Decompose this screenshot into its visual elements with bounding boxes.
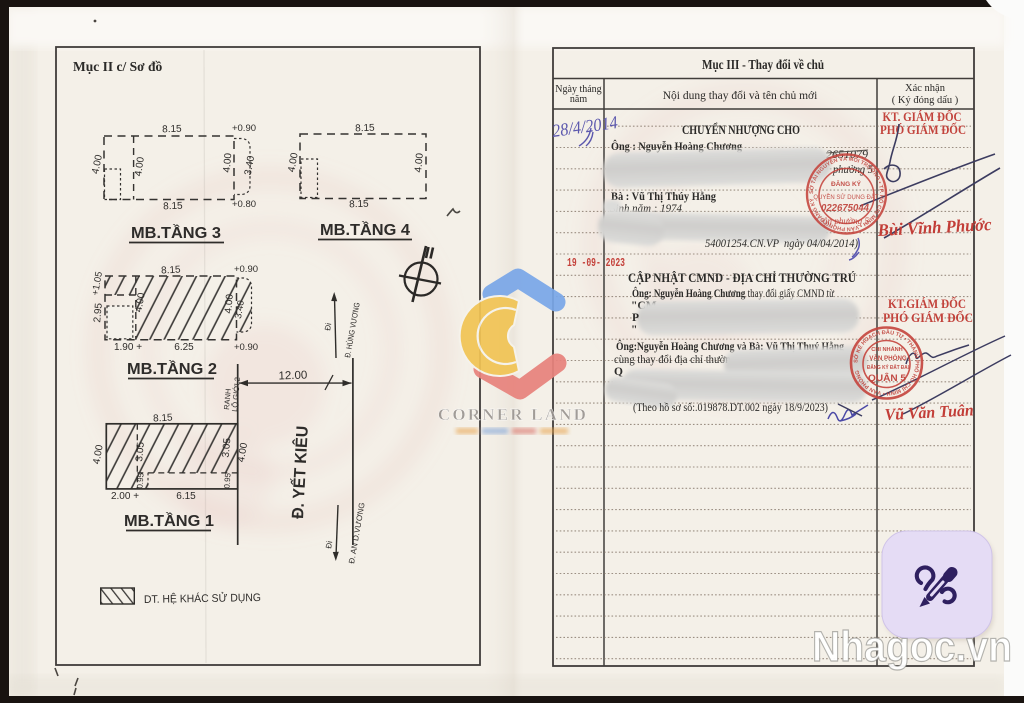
- svg-text:8.15: 8.15: [161, 264, 181, 276]
- svg-text:8.15: 8.15: [162, 124, 182, 136]
- svg-text:+0.90: +0.90: [234, 342, 258, 353]
- svg-text:8.15: 8.15: [355, 123, 375, 135]
- svg-text:2.95: 2.95: [92, 302, 105, 323]
- svg-text:QUYỀN SỬ DỤNG ĐẤT: QUYỀN SỬ DỤNG ĐẤT: [813, 194, 878, 201]
- svg-text:MB.TẦNG 2: MB.TẦNG 2: [127, 359, 217, 378]
- svg-text:CHUYỂN NHƯỢNG CHO: CHUYỂN NHƯỢNG CHO: [682, 122, 800, 137]
- svg-text:8.15: 8.15: [163, 201, 183, 213]
- svg-text:6.15: 6.15: [176, 491, 196, 502]
- svg-text:ngày 04/04/2014): ngày 04/04/2014): [784, 238, 858, 250]
- svg-text:Q: Q: [614, 366, 623, 378]
- svg-text:PHÓ GIÁM ĐỐC: PHÓ GIÁM ĐỐC: [880, 122, 966, 137]
- svg-text:": ": [631, 324, 637, 336]
- svg-text:PHÓ GIÁM ĐỐC: PHÓ GIÁM ĐỐC: [883, 310, 973, 325]
- svg-text:KT. GIÁM ĐỐC: KT. GIÁM ĐỐC: [883, 109, 962, 124]
- svg-text:CORNER LAND: CORNER LAND: [438, 405, 588, 424]
- svg-text:Ông: Nguyễn Hoàng Chương thay: Ông: Nguyễn Hoàng Chương thay đổi giấy C…: [632, 286, 835, 300]
- svg-text:(Theo hồ sơ số:.019878.DT.002: (Theo hồ sơ số:.019878.DT.002 ngày 18/9/…: [633, 401, 828, 414]
- svg-text:CHI NHÁNH: CHI NHÁNH: [871, 346, 902, 353]
- svg-text:Mục II c/ Sơ đồ: Mục II c/ Sơ đồ: [73, 59, 162, 74]
- svg-text:VĂN PHÒNG: VĂN PHÒNG: [869, 354, 907, 362]
- svg-text:ĐĂNG KÝ ĐẤT ĐAI: ĐĂNG KÝ ĐẤT ĐAI: [867, 364, 909, 371]
- svg-text:4.00: 4.00: [413, 152, 426, 173]
- svg-text:DT. HỆ KHÁC SỬ DỤNG: DT. HỆ KHÁC SỬ DỤNG: [144, 591, 261, 606]
- svg-text:năm: năm: [570, 94, 587, 105]
- svg-text:MB.TẦNG 4: MB.TẦNG 4: [320, 220, 410, 239]
- svg-text:Nhagoc.vn: Nhagoc.vn: [812, 623, 1012, 671]
- svg-text:3.05: 3.05: [134, 441, 147, 462]
- svg-text:6.25: 6.25: [174, 342, 194, 353]
- svg-text:0.95: 0.95: [135, 472, 145, 489]
- svg-text:Bà : Vũ Thị Thúy Hằng: Bà : Vũ Thị Thúy Hằng: [611, 189, 716, 203]
- svg-text:8.15: 8.15: [349, 199, 369, 211]
- svg-text:Nội dung thay đổi và tên chủ m: Nội dung thay đổi và tên chủ mới: [663, 89, 818, 102]
- svg-text:4.00: 4.00: [222, 152, 235, 173]
- svg-text:3.05: 3.05: [221, 437, 234, 458]
- svg-text:( Ký đóng dấu ): ( Ký đóng dấu ): [892, 95, 959, 106]
- svg-text:MB.TẦNG 3: MB.TẦNG 3: [131, 223, 221, 242]
- svg-text:022675044: 022675044: [821, 203, 869, 214]
- svg-text:ĐĂNG KÝ: ĐĂNG KÝ: [831, 179, 862, 188]
- svg-text:1.90 +: 1.90 +: [114, 342, 142, 353]
- svg-text:KT.GIÁM ĐỐC: KT.GIÁM ĐỐC: [888, 296, 966, 311]
- svg-text:MB.TẦNG 1: MB.TẦNG 1: [124, 511, 214, 530]
- svg-text:54001254.CN.VP: 54001254.CN.VP: [705, 238, 779, 250]
- svg-text:+0.90: +0.90: [232, 123, 256, 134]
- svg-text:12.00: 12.00: [278, 370, 307, 383]
- svg-text:8.15: 8.15: [153, 412, 173, 424]
- svg-text:Mục III - Thay đổi về chủ: Mục III - Thay đổi về chủ: [702, 57, 824, 72]
- svg-text:cùng thay đổi địa chỉ thường: cùng thay đổi địa chỉ thường: [614, 353, 736, 366]
- svg-text:QUẬN 5: QUẬN 5: [868, 372, 907, 384]
- svg-text:CẬP NHẬT CMND - ĐỊA CHỈ THƯỜNG: CẬP NHẬT CMND - ĐỊA CHỈ THƯỜNG TRÚ: [628, 271, 856, 285]
- svg-text:Xác nhận: Xác nhận: [905, 83, 946, 94]
- svg-text:+0.90: +0.90: [234, 264, 258, 275]
- svg-text:P: P: [632, 312, 639, 324]
- svg-text:0.95: 0.95: [222, 472, 232, 489]
- svg-text:+0.80: +0.80: [232, 199, 256, 210]
- svg-text:19 -09- 2023: 19 -09- 2023: [567, 256, 625, 270]
- svg-text:2.00 +: 2.00 +: [111, 491, 139, 502]
